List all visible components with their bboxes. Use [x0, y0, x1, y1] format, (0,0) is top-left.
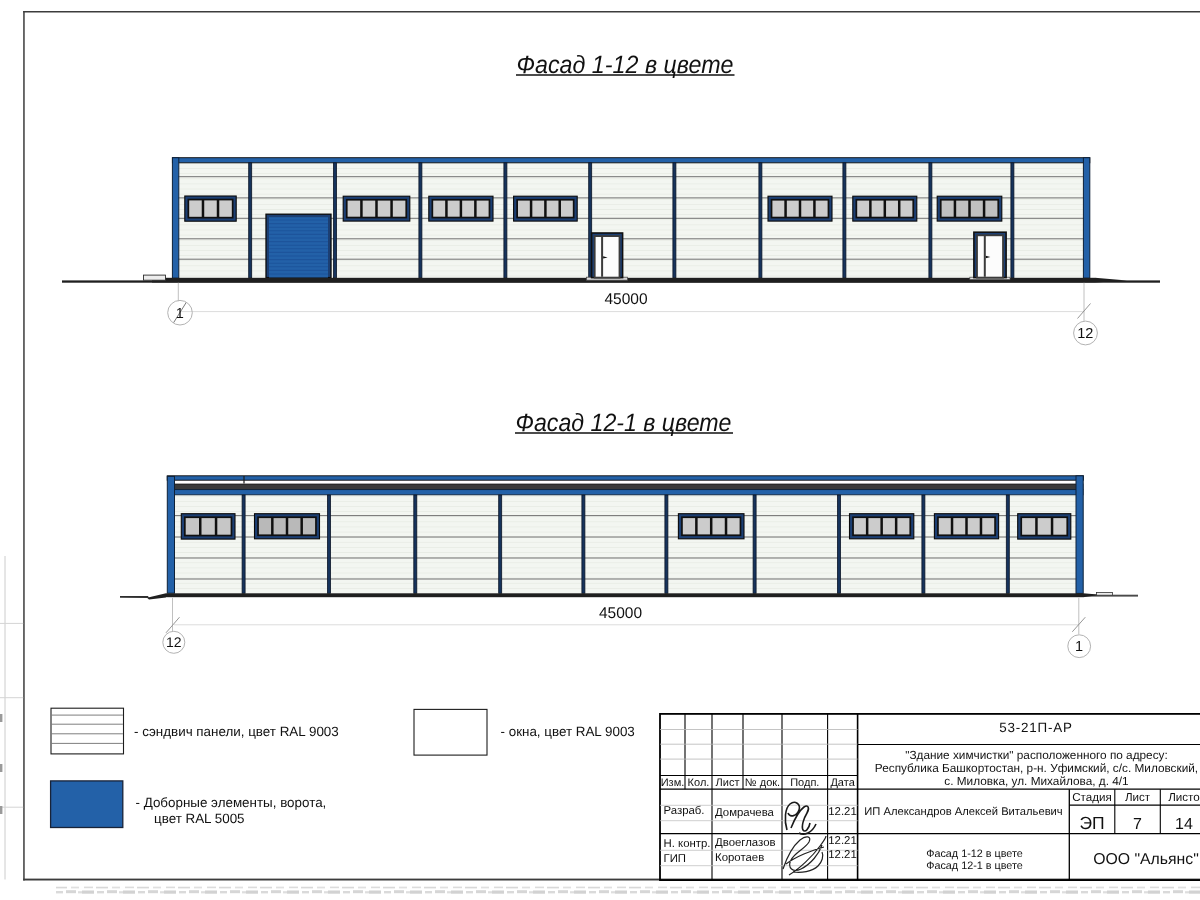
svg-text:- Доборные элементы, ворота,: - Доборные элементы, ворота,: [136, 795, 327, 810]
svg-text:Домрачева: Домрачева: [715, 807, 775, 819]
svg-text:Разраб.: Разраб.: [664, 805, 705, 817]
svg-text:ООО "Альянс": ООО "Альянс": [1093, 851, 1199, 868]
svg-text:ГИП: ГИП: [664, 853, 687, 865]
svg-text:ЭП: ЭП: [1079, 813, 1104, 833]
svg-text:7: 7: [1133, 816, 1142, 833]
svg-text:Подп.: Подп.: [790, 777, 819, 789]
svg-text:12.21: 12.21: [828, 849, 857, 861]
svg-text:- окна, цвет RAL 9003: - окна, цвет RAL 9003: [501, 724, 635, 739]
svg-text:Лист: Лист: [1125, 791, 1151, 804]
svg-text:Стадия: Стадия: [1072, 791, 1112, 804]
svg-text:Коротаев: Коротаев: [715, 852, 764, 864]
svg-text:14: 14: [1175, 816, 1193, 833]
svg-text:12.21: 12.21: [828, 835, 857, 847]
svg-text:Фасад 1-12 в цвете: Фасад 1-12 в цвете: [926, 848, 1023, 860]
svg-text:Фасад 12-1 в цвете: Фасад 12-1 в цвете: [926, 860, 1023, 872]
svg-text:Лист: Лист: [716, 777, 740, 789]
svg-text:Н. контр.: Н. контр.: [664, 838, 711, 850]
svg-text:45000: 45000: [604, 291, 647, 308]
svg-text:45000: 45000: [599, 605, 642, 622]
svg-text:12.21: 12.21: [828, 806, 857, 818]
svg-text:Двоеглазов: Двоеглазов: [715, 837, 776, 849]
svg-text:53-21П-АР: 53-21П-АР: [999, 720, 1072, 735]
svg-text:12: 12: [166, 634, 182, 650]
svg-text:Кол.: Кол.: [688, 777, 710, 789]
svg-text:№ док.: № док.: [745, 777, 780, 789]
svg-text:12: 12: [1077, 326, 1093, 342]
svg-text:"Здание химчистки" расположенн: "Здание химчистки" расположенного по адр…: [905, 748, 1168, 762]
svg-text:Дата: Дата: [830, 777, 855, 789]
svg-text:1: 1: [1075, 639, 1083, 655]
svg-text:ИП Александров Алексей Виталье: ИП Александров Алексей Витальевич: [864, 806, 1063, 818]
svg-text:- сэндвич панели, цвет RAL 900: - сэндвич панели, цвет RAL 9003: [134, 724, 339, 739]
svg-text:с. Миловка, ул. Михайлова, д.: с. Миловка, ул. Михайлова, д. 4/1: [944, 774, 1128, 788]
svg-text:цвет RAL 5005: цвет RAL 5005: [154, 811, 245, 826]
svg-text:1: 1: [176, 306, 184, 322]
svg-text:Листо: Листо: [1168, 791, 1200, 804]
svg-text:Изм.: Изм.: [661, 777, 685, 789]
